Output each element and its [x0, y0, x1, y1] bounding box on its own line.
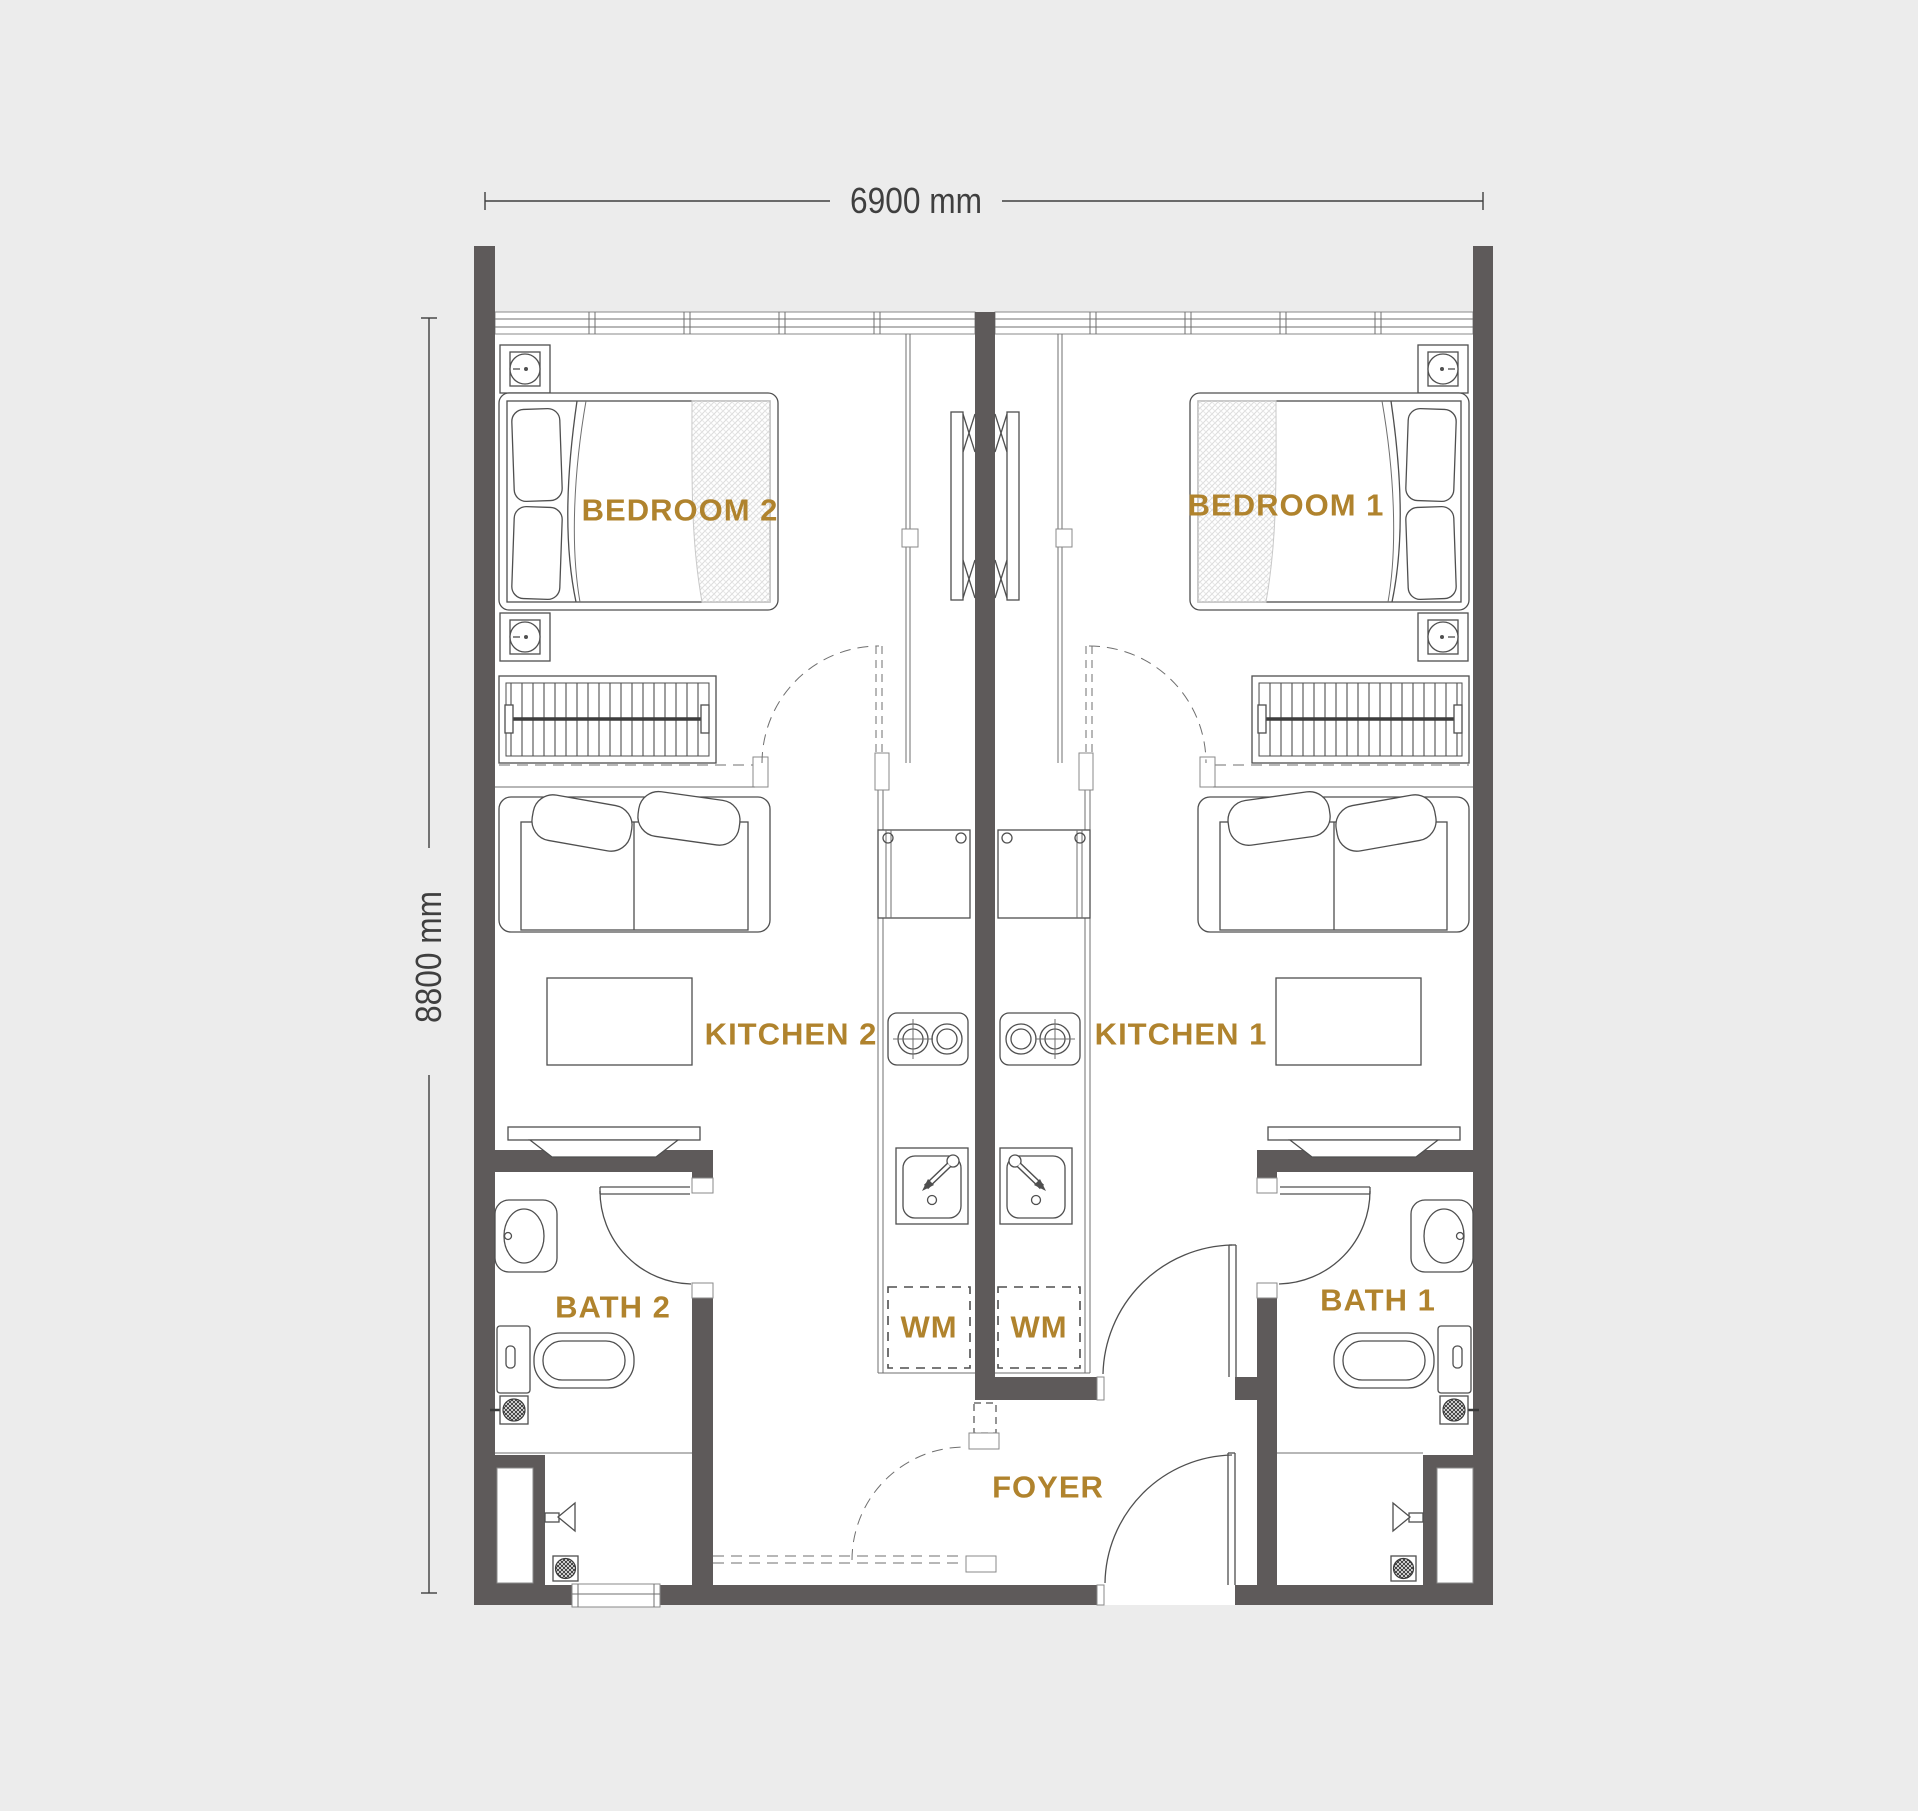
wardrobe-bedroom2 — [499, 676, 716, 763]
sink-kitchen2 — [896, 1148, 968, 1224]
sink-bath1 — [1411, 1200, 1473, 1272]
dimension-width-label: 6900 mm — [850, 183, 982, 219]
sofa-unit1 — [1198, 789, 1469, 932]
window-shower-left — [497, 1468, 533, 1583]
cooktop-kitchen2 — [888, 1013, 968, 1065]
window-shower-right — [1437, 1468, 1473, 1583]
label-washing-machine-unit2: WM — [900, 1312, 957, 1343]
table-unit2 — [547, 978, 692, 1065]
window-band-left — [495, 312, 975, 334]
room-label-bedroom-1: BEDROOM 1 — [1188, 490, 1385, 521]
room-label-kitchen-2: KITCHEN 2 — [705, 1019, 878, 1050]
entrance-opening — [1097, 1585, 1235, 1605]
room-label-bath-1: BATH 1 — [1320, 1285, 1436, 1316]
room-label-bath-2: BATH 2 — [555, 1292, 671, 1323]
sofa-unit2 — [499, 789, 770, 932]
dimension-line-width — [485, 192, 1483, 210]
sink-kitchen1 — [1000, 1148, 1072, 1224]
room-label-bedroom-2: BEDROOM 2 — [582, 495, 779, 526]
room-label-foyer: FOYER — [992, 1472, 1104, 1503]
sink-bath2 — [495, 1200, 557, 1272]
table-unit1 — [1276, 978, 1421, 1065]
window-bottom-left — [572, 1584, 660, 1607]
wardrobe-bedroom1 — [1252, 676, 1469, 763]
toilet-bath2 — [497, 1326, 634, 1393]
dimension-height-label: 8800 mm — [411, 891, 447, 1023]
floorplan-canvas: 6900 mm 8800 mm BEDROOM 2 BEDROOM 1 KITC… — [0, 0, 1918, 1811]
floor-drain-bath2 — [553, 1556, 578, 1581]
nightstand-bedroom1-bottom — [1418, 613, 1468, 661]
toilet-bath1 — [1334, 1326, 1471, 1393]
room-label-kitchen-1: KITCHEN 1 — [1095, 1019, 1268, 1050]
floorplan-drawing — [0, 0, 1918, 1811]
window-band-right — [995, 312, 1473, 334]
nightstand-bedroom2-bottom — [500, 613, 550, 661]
label-washing-machine-unit1: WM — [1010, 1312, 1067, 1343]
nightstand-bedroom2-top — [500, 345, 550, 393]
nightstand-bedroom1-top — [1418, 345, 1468, 393]
floor-drain-bath1 — [1391, 1556, 1416, 1581]
cooktop-kitchen1 — [1000, 1013, 1080, 1065]
